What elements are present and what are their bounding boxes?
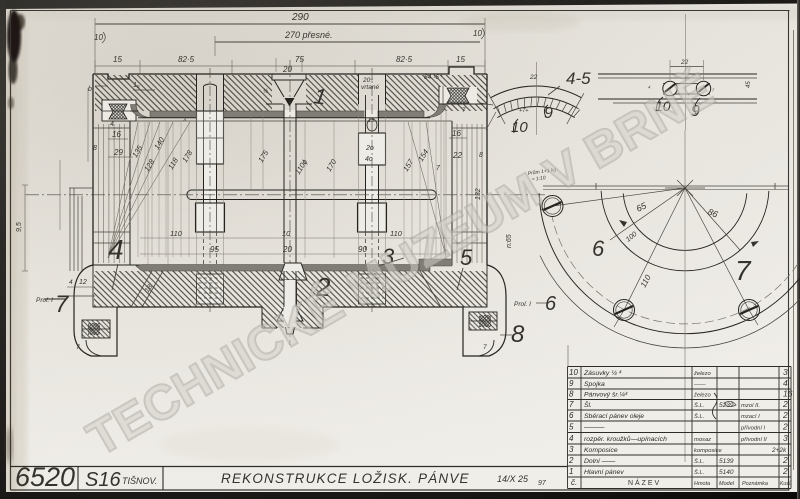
svg-text:6520: 6520 bbox=[15, 462, 75, 492]
svg-text:Komposice: Komposice bbox=[584, 447, 618, 454]
svg-text:97: 97 bbox=[538, 480, 547, 487]
svg-text:S16: S16 bbox=[85, 469, 121, 491]
svg-text:15: 15 bbox=[456, 55, 465, 64]
svg-text:16: 16 bbox=[452, 129, 461, 138]
svg-text:vrtané: vrtané bbox=[361, 84, 379, 91]
svg-text:6: 6 bbox=[592, 236, 605, 261]
svg-text:29: 29 bbox=[113, 148, 123, 157]
svg-text:10: 10 bbox=[94, 33, 103, 42]
svg-text:16: 16 bbox=[783, 389, 793, 399]
svg-text:3: 3 bbox=[783, 367, 788, 377]
svg-text:6: 6 bbox=[545, 293, 557, 315]
svg-text:10: 10 bbox=[282, 229, 291, 238]
svg-text:4: 4 bbox=[69, 279, 73, 286]
svg-text:2: 2 bbox=[782, 399, 788, 409]
svg-text:290: 290 bbox=[291, 12, 309, 23]
svg-text:Š.L.: Š.L. bbox=[694, 413, 704, 420]
svg-text:4: 4 bbox=[569, 434, 574, 443]
svg-text:12: 12 bbox=[79, 279, 87, 286]
svg-text:9,5: 9,5 bbox=[16, 222, 23, 232]
svg-text:Šl.: Šl. bbox=[584, 400, 592, 409]
svg-text:Proſ. I: Proſ. I bbox=[36, 297, 53, 304]
svg-text:2: 2 bbox=[782, 466, 788, 476]
svg-text:82·5: 82·5 bbox=[178, 55, 195, 64]
svg-text:270 přesné.: 270 přesné. bbox=[284, 30, 333, 40]
svg-text:5: 5 bbox=[569, 423, 574, 432]
svg-text:mosaz: mosaz bbox=[694, 437, 711, 443]
svg-text:16: 16 bbox=[112, 130, 121, 139]
svg-text:8: 8 bbox=[93, 145, 97, 152]
svg-text:82·5: 82·5 bbox=[396, 55, 413, 64]
svg-text:5139: 5139 bbox=[719, 458, 734, 465]
svg-text:15: 15 bbox=[113, 55, 122, 64]
svg-text:2: 2 bbox=[568, 456, 574, 465]
svg-text:7: 7 bbox=[735, 255, 752, 286]
svg-text:10: 10 bbox=[569, 368, 578, 377]
svg-text:4: 4 bbox=[110, 121, 114, 128]
svg-text:TIŠNOV.: TIŠNOV. bbox=[122, 476, 157, 486]
svg-text:komposice: komposice bbox=[694, 448, 722, 454]
svg-text:3: 3 bbox=[783, 433, 788, 443]
svg-text:Model: Model bbox=[719, 481, 735, 487]
svg-text:7: 7 bbox=[55, 291, 70, 318]
svg-text:22: 22 bbox=[529, 74, 538, 81]
svg-text:mzoí II.: mzoí II. bbox=[741, 403, 760, 409]
svg-text:2: 2 bbox=[782, 455, 788, 465]
svg-text:přívodní I: přívodní I bbox=[740, 426, 766, 432]
svg-text:7: 7 bbox=[569, 400, 574, 409]
svg-text:7: 7 bbox=[483, 344, 487, 351]
svg-text:4: 4 bbox=[783, 378, 788, 388]
svg-text:⅜: ⅜ bbox=[263, 89, 268, 95]
svg-text:14/X 25: 14/X 25 bbox=[497, 474, 529, 484]
svg-text:8: 8 bbox=[511, 321, 525, 348]
svg-text:Poznámka: Poznámka bbox=[742, 481, 768, 487]
svg-text:Zásuvky ¼ ⁴: Zásuvky ¼ ⁴ bbox=[583, 370, 622, 377]
svg-text:10: 10 bbox=[473, 29, 482, 38]
svg-text:Š.L.: Š.L. bbox=[694, 402, 704, 409]
svg-text:2: 2 bbox=[782, 410, 788, 420]
svg-text:Š.L.: Š.L. bbox=[694, 458, 704, 465]
svg-text:2: 2 bbox=[782, 422, 788, 432]
svg-text:č.: č. bbox=[571, 478, 577, 487]
svg-text:železo: železo bbox=[693, 393, 712, 399]
svg-text:95: 95 bbox=[210, 245, 219, 254]
svg-text:5140: 5140 bbox=[719, 469, 734, 476]
svg-text:Kusů: Kusů bbox=[780, 480, 792, 487]
svg-text:Sběrací pánev oleje: Sběrací pánev oleje bbox=[584, 413, 644, 420]
svg-text:20: 20 bbox=[282, 65, 292, 74]
svg-text:b: b bbox=[88, 86, 92, 93]
svg-text:45: 45 bbox=[746, 81, 752, 88]
svg-text:110: 110 bbox=[170, 229, 183, 238]
svg-text:20⁴: 20⁴ bbox=[362, 77, 373, 84]
svg-text:přívodní II: přívodní II bbox=[740, 437, 767, 443]
svg-text:n:65: n:65 bbox=[506, 234, 513, 248]
svg-text:železo: železo bbox=[693, 371, 712, 377]
svg-text:22: 22 bbox=[452, 151, 462, 160]
svg-text:+7+: +7+ bbox=[519, 108, 529, 114]
svg-text:4-5: 4-5 bbox=[566, 69, 591, 88]
svg-text:3: 3 bbox=[569, 445, 574, 454]
svg-text:Proſ. I: Proſ. I bbox=[514, 301, 531, 308]
svg-text:6: 6 bbox=[569, 411, 574, 420]
svg-text:20: 20 bbox=[282, 245, 292, 254]
svg-text:8: 8 bbox=[569, 390, 574, 399]
svg-text:N Á Z E V: N Á Z E V bbox=[628, 478, 659, 487]
svg-text:REKONSTRUKCE LOŽISK. PÁNVE: REKONSTRUKCE LOŽISK. PÁNVE bbox=[221, 471, 470, 486]
svg-text:——: —— bbox=[693, 382, 706, 388]
svg-text:Hmota: Hmota bbox=[694, 481, 710, 487]
svg-text:75: 75 bbox=[295, 55, 304, 64]
svg-text:Š.L.: Š.L. bbox=[694, 469, 704, 476]
svg-text:mzací I: mzací I bbox=[741, 414, 760, 420]
svg-text:Hlavní pánev: Hlavní pánev bbox=[584, 469, 624, 476]
svg-text:8: 8 bbox=[479, 152, 483, 159]
svg-text:22: 22 bbox=[680, 59, 689, 66]
svg-text:1: 1 bbox=[569, 467, 573, 476]
svg-text:9: 9 bbox=[569, 379, 574, 388]
svg-text:2+2k: 2+2k bbox=[771, 447, 787, 454]
svg-text:4: 4 bbox=[108, 234, 124, 265]
svg-text:1₅: 1₅ bbox=[133, 82, 140, 89]
svg-text:Pánvový šr.¼⁴: Pánvový šr.¼⁴ bbox=[584, 392, 628, 399]
svg-text:———: ——— bbox=[583, 425, 605, 432]
svg-text:Spojka: Spojka bbox=[584, 381, 605, 388]
svg-text:rozpěr. kroužků—upínacích: rozpěr. kroužků—upínacích bbox=[584, 435, 667, 443]
svg-text:84 ¹6⁺: 84 ¹6⁺ bbox=[424, 74, 443, 81]
svg-text:Dolní ——: Dolní —— bbox=[584, 458, 616, 465]
svg-text:2o: 2o bbox=[365, 145, 374, 152]
svg-text:7: 7 bbox=[76, 344, 80, 351]
